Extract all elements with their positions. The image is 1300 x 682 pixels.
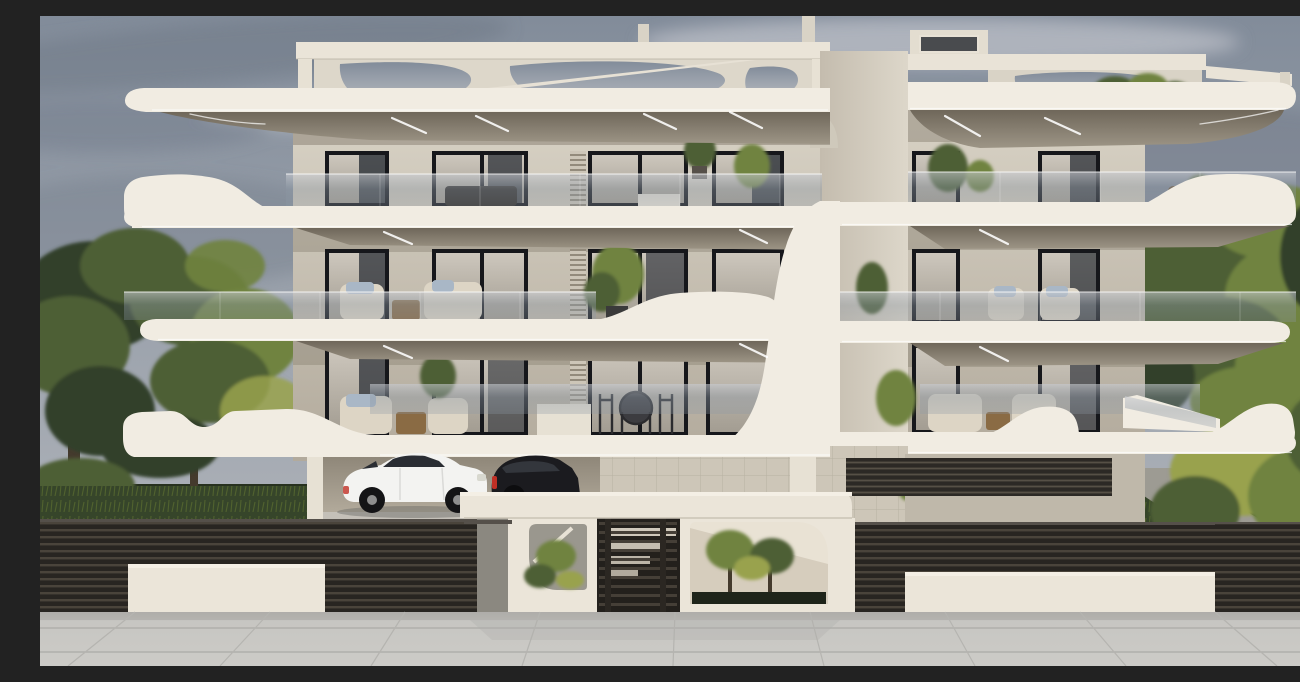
sidewalk (40, 612, 1300, 666)
entrance-gate (597, 518, 680, 616)
architectural-render (40, 16, 1300, 666)
apartment-building (123, 16, 1296, 528)
fence-left (40, 519, 477, 616)
entrance-wall (460, 492, 855, 616)
